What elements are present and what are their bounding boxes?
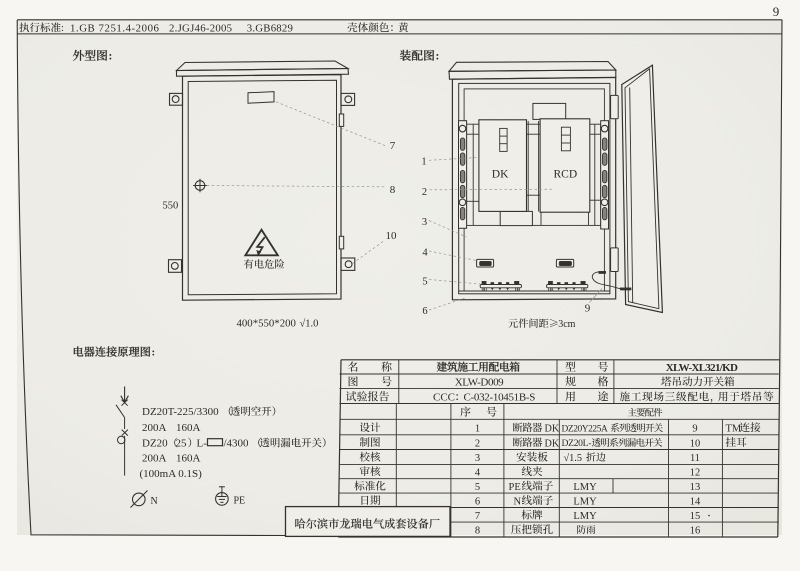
svg-text:3.GB6829: 3.GB6829: [247, 22, 293, 34]
svg-text:10: 10: [386, 230, 398, 242]
svg-text:6: 6: [475, 496, 480, 507]
svg-text:DZ20T-225/3300: DZ20T-225/3300: [142, 406, 219, 418]
svg-text:400*550*200: 400*550*200: [237, 318, 296, 330]
svg-text:6: 6: [422, 306, 427, 317]
svg-text:/4300: /4300: [224, 438, 250, 450]
svg-text:160A: 160A: [176, 453, 201, 465]
svg-text:9: 9: [585, 303, 591, 315]
svg-text:14: 14: [690, 496, 701, 507]
svg-text:LMY: LMY: [573, 496, 597, 507]
svg-text:DK: DK: [492, 169, 509, 181]
svg-text::: :: [61, 23, 64, 34]
svg-text:550: 550: [163, 201, 179, 212]
svg-text:8: 8: [390, 184, 396, 196]
svg-text:9: 9: [773, 4, 780, 19]
svg-text:15: 15: [690, 511, 701, 522]
svg-text:DZ20: DZ20: [142, 438, 168, 450]
svg-text:10: 10: [690, 438, 701, 449]
svg-text:1.GB 7251.4-2006: 1.GB 7251.4-2006: [70, 22, 160, 34]
svg-text:1: 1: [421, 156, 426, 167]
svg-text:11: 11: [690, 453, 700, 464]
svg-text:5: 5: [475, 482, 480, 493]
svg-text:2: 2: [475, 438, 480, 449]
svg-text:25: 25: [176, 438, 188, 450]
svg-text:XLW-D009: XLW-D009: [455, 377, 504, 389]
svg-text::: :: [109, 51, 113, 63]
svg-text:√1.0: √1.0: [300, 318, 319, 330]
svg-text:XLW-XL321/KD: XLW-XL321/KD: [666, 362, 738, 374]
svg-text:13: 13: [690, 482, 701, 493]
svg-text:7: 7: [475, 511, 480, 522]
svg-text:3: 3: [422, 217, 427, 228]
svg-text:N: N: [151, 496, 158, 507]
svg-text::: :: [152, 347, 156, 359]
svg-text:RCD: RCD: [554, 168, 578, 180]
svg-text:1: 1: [475, 424, 480, 435]
svg-text:LMY: LMY: [573, 511, 597, 522]
svg-text:CCC: CCC: [433, 392, 455, 404]
svg-text:12: 12: [690, 468, 701, 479]
svg-text:L-: L-: [197, 438, 208, 450]
svg-text:3cm: 3cm: [558, 319, 575, 330]
svg-text:8: 8: [475, 525, 480, 536]
svg-text:2: 2: [422, 187, 427, 198]
svg-text:DZ20Y225A: DZ20Y225A: [562, 424, 609, 434]
svg-text:LMY: LMY: [573, 482, 597, 493]
svg-text:4: 4: [422, 247, 428, 258]
svg-text:200A: 200A: [142, 422, 167, 434]
svg-text:4: 4: [475, 468, 481, 479]
svg-text:PE: PE: [509, 482, 521, 493]
svg-text:DK: DK: [545, 424, 560, 435]
svg-text:200A: 200A: [142, 453, 167, 465]
svg-text:C-032-10451B-S: C-032-10451B-S: [464, 392, 536, 404]
svg-text:PE: PE: [234, 496, 246, 507]
svg-text:TM: TM: [726, 423, 742, 434]
svg-text:3: 3: [475, 453, 480, 464]
svg-text:160A: 160A: [176, 422, 201, 434]
svg-text:DZ20L-: DZ20L-: [562, 438, 592, 449]
svg-text:9: 9: [692, 424, 697, 435]
svg-text:16: 16: [690, 525, 701, 536]
svg-text:5: 5: [422, 277, 427, 288]
svg-text:N: N: [514, 496, 522, 507]
svg-text::: :: [436, 51, 440, 63]
svg-text:√1.5: √1.5: [564, 452, 583, 464]
svg-text:7: 7: [390, 140, 396, 152]
svg-text:(100mA 0.1S): (100mA 0.1S): [140, 468, 203, 480]
svg-text:DK: DK: [545, 438, 560, 449]
svg-text:2.JGJ46-2005: 2.JGJ46-2005: [169, 22, 232, 34]
